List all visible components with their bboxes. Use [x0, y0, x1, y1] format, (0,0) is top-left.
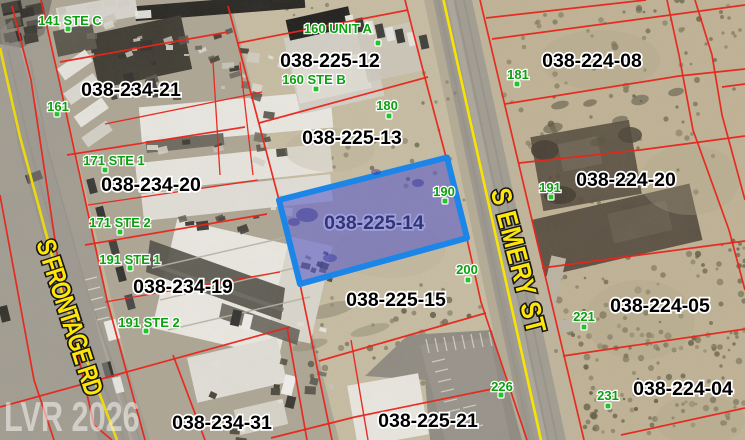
svg-text:190: 190 [433, 184, 455, 199]
svg-text:038-225-15: 038-225-15 [346, 289, 446, 311]
svg-text:038-224-20: 038-224-20 [576, 169, 676, 191]
svg-text:181: 181 [507, 67, 529, 82]
svg-text:038-224-05: 038-224-05 [610, 295, 710, 317]
svg-text:191 STE 1: 191 STE 1 [99, 252, 160, 267]
svg-text:038-224-04: 038-224-04 [633, 378, 733, 400]
svg-text:038-234-20: 038-234-20 [101, 174, 201, 196]
svg-text:038-234-21: 038-234-21 [81, 79, 181, 101]
svg-text:191: 191 [539, 180, 561, 195]
svg-text:180: 180 [376, 98, 398, 113]
svg-text:038-225-13: 038-225-13 [302, 127, 402, 149]
svg-text:141 STE C: 141 STE C [38, 13, 102, 28]
svg-text:171 STE 1: 171 STE 1 [83, 153, 144, 168]
svg-text:171 STE 2: 171 STE 2 [89, 215, 150, 230]
svg-text:LVR 2026: LVR 2026 [4, 393, 140, 440]
svg-text:221: 221 [573, 309, 595, 324]
svg-text:038-234-19: 038-234-19 [133, 276, 233, 298]
svg-text:038-225-12: 038-225-12 [280, 50, 380, 72]
svg-text:160 UNIT A: 160 UNIT A [304, 21, 373, 36]
svg-text:231: 231 [597, 388, 619, 403]
svg-text:038-224-08: 038-224-08 [542, 50, 642, 72]
svg-text:226: 226 [491, 379, 513, 394]
svg-text:038-234-31: 038-234-31 [172, 412, 272, 434]
svg-text:161: 161 [47, 99, 69, 114]
svg-text:191 STE 2: 191 STE 2 [118, 315, 179, 330]
svg-text:160 STE B: 160 STE B [282, 72, 346, 87]
svg-text:038-225-21: 038-225-21 [378, 410, 478, 432]
svg-text:200: 200 [456, 262, 478, 277]
